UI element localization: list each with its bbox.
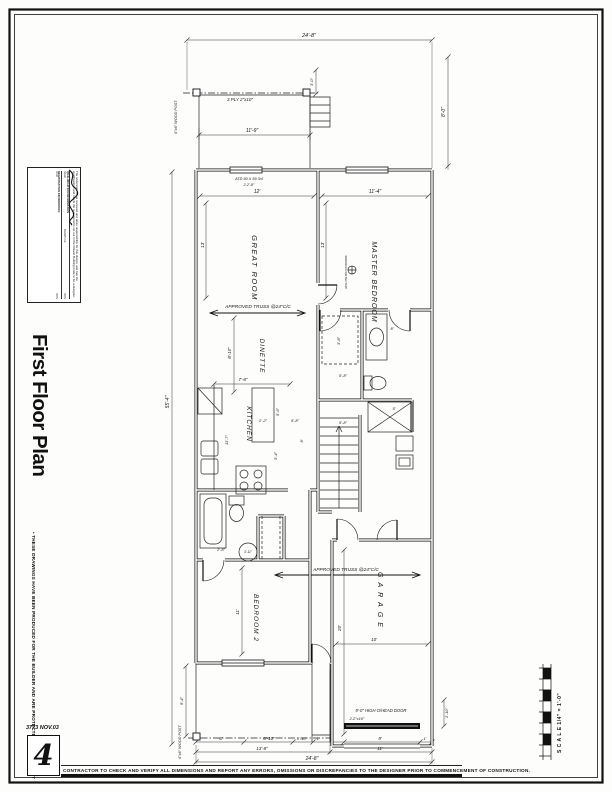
walls-core [196, 170, 432, 746]
stamp-firm-label: FIRM [54, 171, 57, 177]
dimension-label: 5'-8" [291, 418, 300, 423]
dimension-label: 5'-8" [339, 373, 348, 378]
bathtub [200, 494, 226, 548]
dimension-label: 1'-10" [297, 736, 308, 741]
designer-stamp-block: The undersigned has reviewed and takes r… [27, 167, 81, 303]
kitchen-sink [201, 441, 218, 474]
signature-glyph [64, 168, 80, 226]
dimension-label: 1' [424, 736, 427, 741]
window-note: ATD 60 X 59 3/4 [234, 177, 263, 181]
porch-beam-note: 3 PLY 2"x10" [227, 97, 253, 102]
room-label-kitchen: KITCHEN [245, 406, 252, 442]
toilet-ensuite [364, 376, 386, 390]
garage-door-note: 9'-0" HIGH O/HEAD DOOR [356, 708, 407, 713]
wood-post-note: 6"x6" WOOD POST [174, 100, 178, 134]
sheet-date: NOV.03 [40, 725, 59, 731]
truss-arrows [210, 310, 420, 578]
dimension-label: 11'-7" [224, 434, 229, 444]
dimension-label: 5'-6" [275, 407, 280, 416]
toilet-main-bath [229, 496, 244, 522]
room-label-bedroom-2: BEDROOM 2 [252, 594, 259, 642]
smoke-detector-symbol [348, 266, 356, 274]
dimension-label: 5' [393, 406, 396, 411]
dimension-label: 13'-8" [256, 746, 268, 751]
dimension-label: 8'-0" [441, 107, 447, 117]
dimension-label: 8'-10" [227, 347, 232, 359]
dimension-label: 9' [378, 736, 382, 741]
sheet-title: First Floor Plan [27, 334, 51, 510]
dimension-label: 5'-4" [179, 696, 184, 705]
stamp-bcin-label: BCIN [63, 293, 66, 299]
sheet-number: 4 [33, 741, 53, 770]
dimension-label: 12' [254, 189, 262, 195]
dimension-label: 11'-9" [246, 128, 259, 134]
dimension-label: 55'-4" [165, 395, 171, 408]
dimension-label: 1'-10" [444, 707, 449, 718]
dimension-label: 8' [391, 326, 394, 331]
dimension-label: 7'-8" [239, 377, 248, 382]
dimension-label: 5'-8" [339, 420, 348, 425]
room-label-garage: GARAGE [376, 572, 383, 632]
drawing-sheet: GREAT ROOMMASTER BEDROOMDINETTEKITCHENBE… [0, 0, 612, 792]
stamp-signature-label: SIGNATURE [63, 229, 66, 243]
scale-bar [539, 664, 551, 760]
fridge [198, 388, 222, 414]
sheet-border [10, 10, 603, 783]
stamp-bcin-label: BCIN [54, 293, 57, 299]
job-number-line: 3773 NOV.03 [26, 725, 72, 731]
front-walkway [312, 663, 330, 742]
dimension-label: 13' [200, 242, 205, 248]
porch-steps [310, 97, 330, 127]
dimension-label: 11' [235, 609, 240, 615]
room-label-master-bedroom: MASTER BEDROOM [370, 241, 377, 322]
dimension-label: 11'-4" [369, 189, 382, 195]
wood-post-note: 6"x6" WOOD POST [178, 725, 182, 759]
room-label-great-room: GREAT ROOM [250, 235, 259, 301]
walls [196, 170, 432, 746]
stair-direction-arrow [336, 426, 342, 508]
room-label-dinette: DINETTE [258, 339, 265, 374]
dimension-label: 6'-10" [263, 736, 275, 741]
contractor-note: CONTRACTOR TO CHECK AND VERIFY ALL DIMEN… [61, 765, 462, 777]
dimension-label: 3'-11" [244, 550, 253, 554]
floor-plan-svg: GREAT ROOMMASTER BEDROOMDINETTEKITCHENBE… [0, 0, 612, 792]
plan-labels: GREAT ROOMMASTER BEDROOMDINETTEKITCHENBE… [165, 33, 449, 762]
dimension-label: 10' [371, 637, 377, 642]
garage-door [344, 723, 420, 748]
dimension-label: 11' [377, 746, 383, 751]
window-note: 2-2'-8" [243, 183, 256, 187]
dimension-label: 6' [219, 736, 223, 741]
truss-note: APPROVED TRUSS @24"C/C [224, 304, 291, 310]
island [252, 388, 274, 442]
dimension-label: 24'-8" [301, 33, 317, 39]
linen-chase-x-box [368, 402, 412, 432]
dimension-label: 24'-8" [305, 756, 319, 762]
dimension-label: 20' [337, 625, 342, 632]
job-number: 3773 [26, 725, 38, 731]
garage-door-note: 2-2"x10" [348, 716, 365, 721]
sheet-number-box: 4 [27, 735, 60, 776]
dimension-label: 8' [299, 439, 304, 442]
truss-note: APPROVED TRUSS @24"C/C [312, 567, 379, 573]
dimension-label: 1' [317, 736, 320, 741]
dimension-label: 2'-2" [258, 418, 268, 423]
copyright-note: • THESE DRAWINGS HAVE BEEN PRODUCED FOR … [27, 532, 36, 726]
dimension-label: 13' [320, 242, 325, 248]
dimension-label: 2'-8" [216, 547, 226, 552]
stairs [320, 418, 358, 508]
laundry-appliances [396, 436, 413, 469]
smoke-detector-note: SMOKE/CO DETECTOR [344, 255, 348, 289]
dimension-label: 3'-8" [336, 336, 341, 345]
scale-label: S C A L E 1/4" = 1'-0" [557, 665, 567, 753]
stamp-registration-header: REGISTRATION INFORMATION [57, 171, 60, 212]
dimension-label: 3'-4" [273, 451, 278, 460]
closet-bifold [262, 516, 280, 560]
dimension-label: 3'-0" [309, 77, 314, 86]
